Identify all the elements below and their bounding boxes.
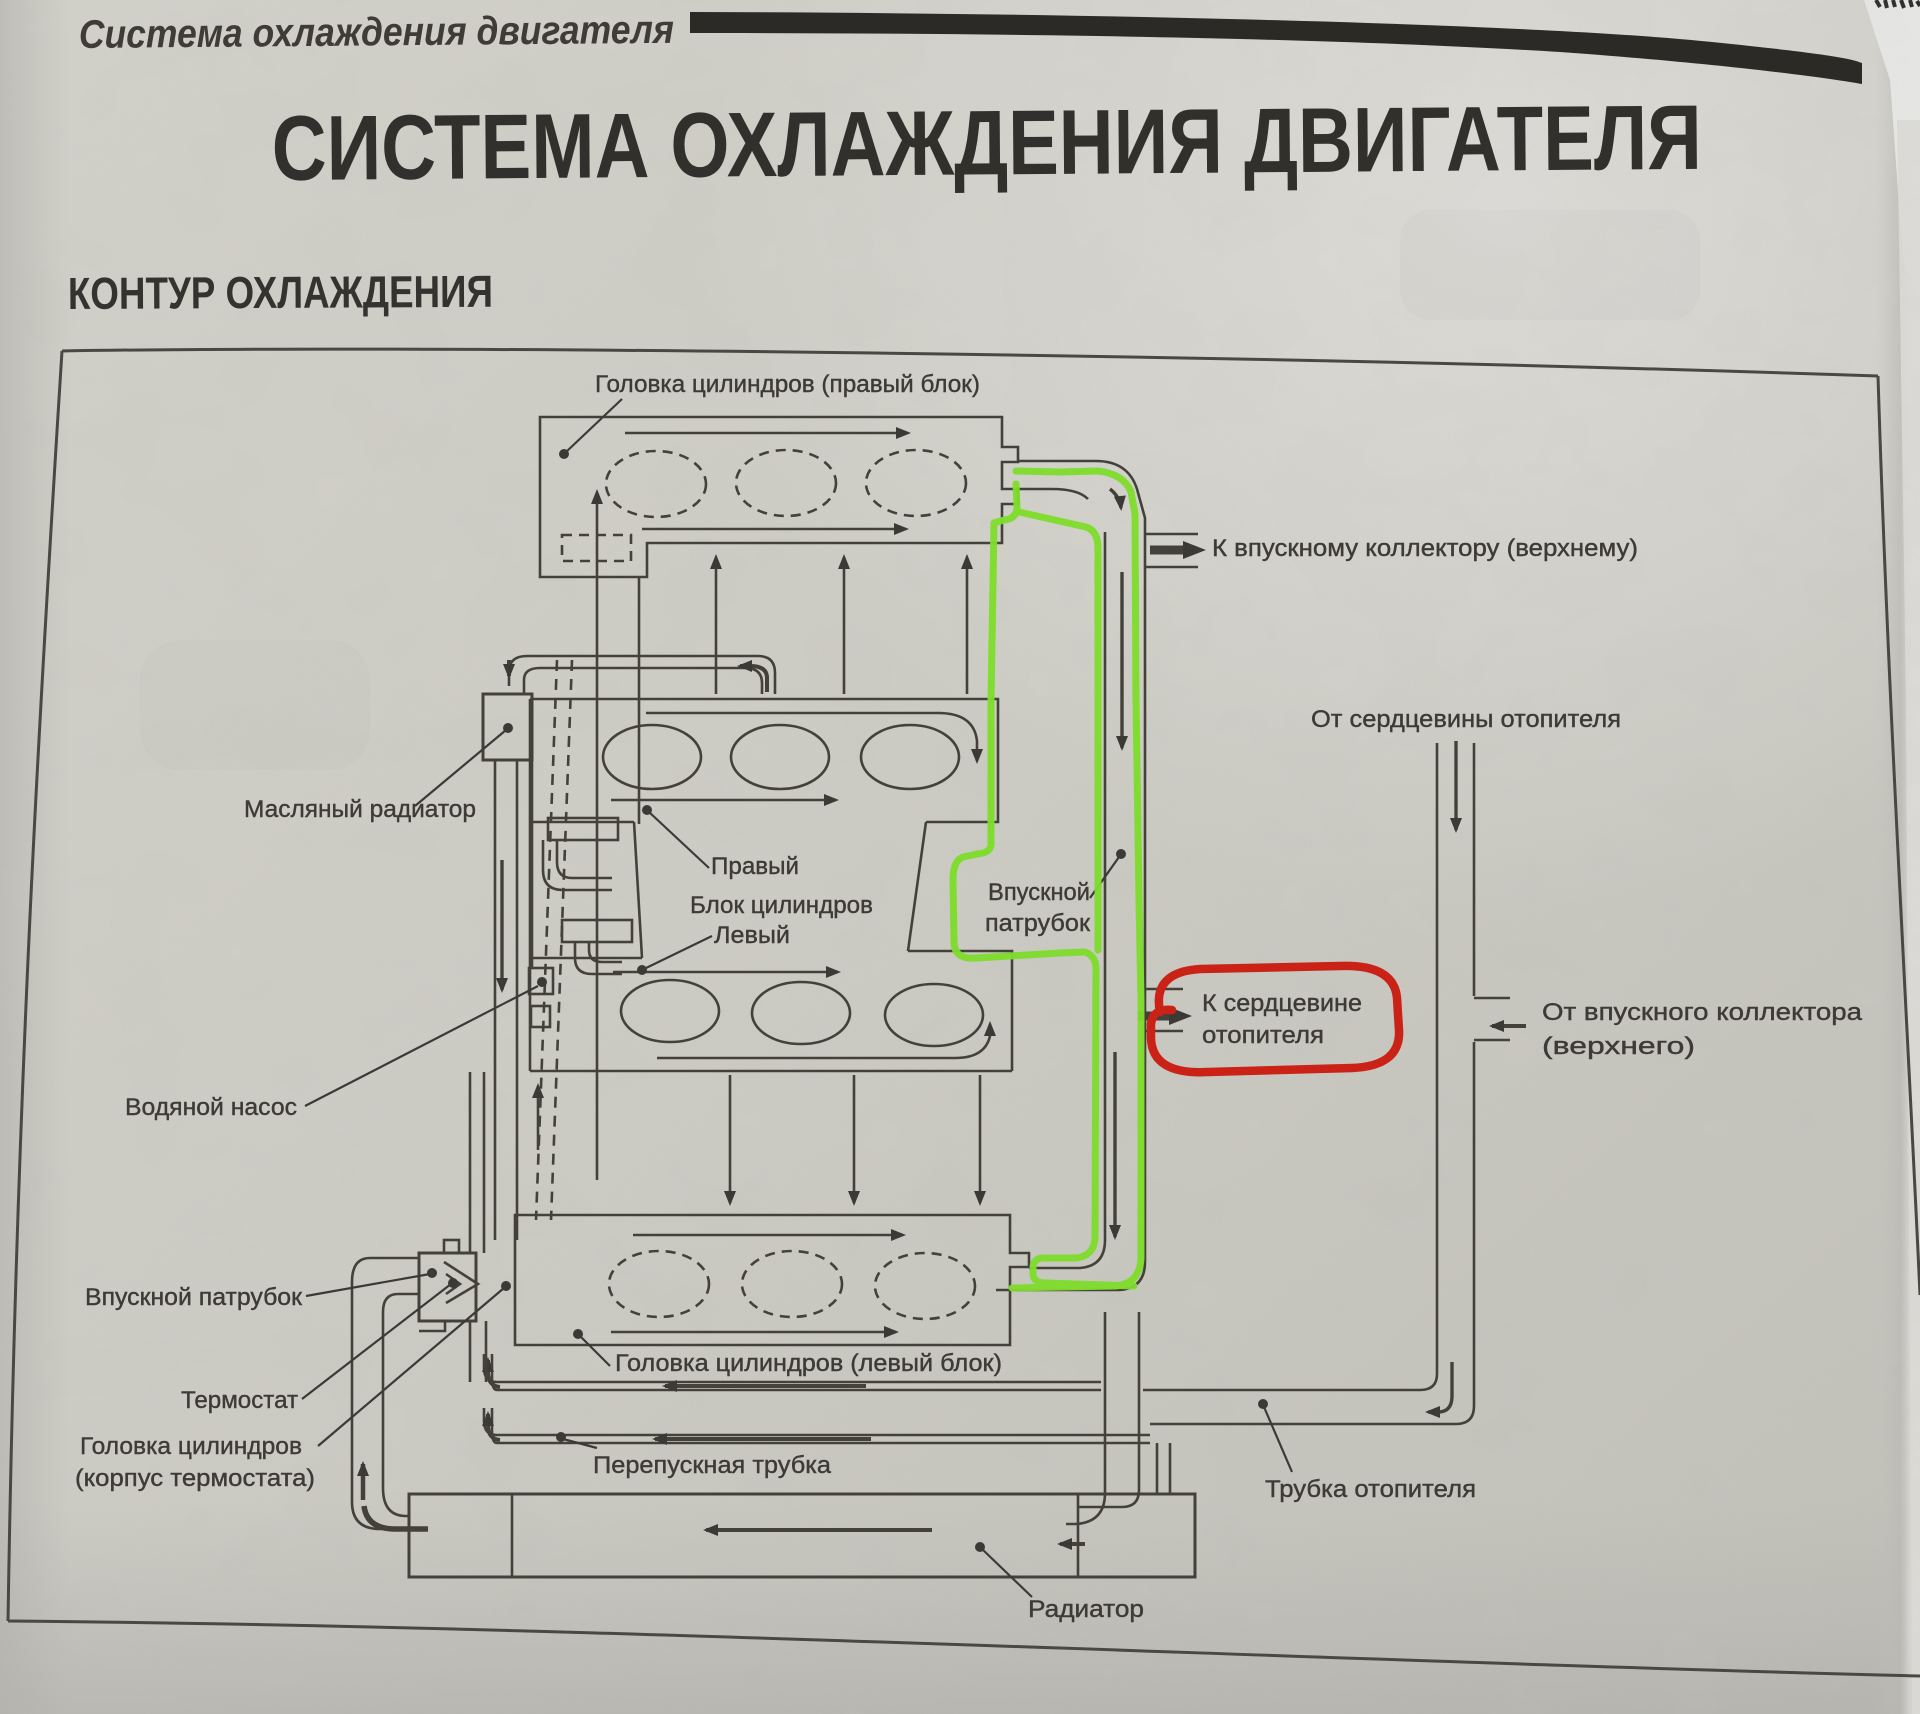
- svg-text:СИСТЕМА ОХЛАЖДЕНИЯ ДВИГАТЕЛЯ: СИСТЕМА ОХЛАЖДЕНИЯ ДВИГАТЕЛЯ: [271, 87, 1702, 200]
- svg-text:Головка цилиндров: Головка цилиндров: [80, 1433, 302, 1460]
- svg-text:Масляный радиатор: Масляный радиатор: [244, 796, 476, 823]
- svg-text:Трубка отопителя: Трубка отопителя: [1265, 1476, 1476, 1503]
- svg-text:Впускной патрубок: Впускной патрубок: [85, 1284, 303, 1311]
- svg-text:КОНТУР ОХЛАЖДЕНИЯ: КОНТУР ОХЛАЖДЕНИЯ: [68, 266, 493, 319]
- svg-text:Головка цилиндров (правый блок: Головка цилиндров (правый блок): [595, 371, 980, 398]
- svg-text:К сердцевине: К сердцевине: [1202, 990, 1362, 1017]
- svg-text:(верхнего): (верхнего): [1542, 1033, 1695, 1060]
- svg-text:От сердцевины отопителя: От сердцевины отопителя: [1311, 706, 1621, 733]
- svg-text:Перепускная трубка: Перепускная трубка: [593, 1452, 832, 1479]
- svg-text:Система охлаждения двигателя: Система охлаждения двигателя: [79, 8, 674, 57]
- svg-text:Термостат: Термостат: [181, 1387, 298, 1414]
- svg-text:патрубок: патрубок: [985, 910, 1091, 937]
- svg-text:Левый: Левый: [714, 922, 790, 949]
- svg-text:Радиатор: Радиатор: [1028, 1596, 1144, 1623]
- svg-text:К впускному коллектору (верхне: К впускному коллектору (верхнему): [1212, 535, 1638, 562]
- svg-text:отопителя: отопителя: [1202, 1022, 1324, 1049]
- svg-text:Головка цилиндров (левый блок): Головка цилиндров (левый блок): [615, 1350, 1002, 1377]
- svg-text:Водяной насос: Водяной насос: [125, 1094, 297, 1121]
- svg-text:От впускного коллектора: От впускного коллектора: [1542, 999, 1863, 1026]
- svg-text:Впускной: Впускной: [988, 879, 1090, 906]
- svg-text:Блок цилиндров: Блок цилиндров: [690, 892, 873, 919]
- svg-text:Правый: Правый: [711, 853, 799, 880]
- svg-text:(корпус термостата): (корпус термостата): [75, 1465, 315, 1492]
